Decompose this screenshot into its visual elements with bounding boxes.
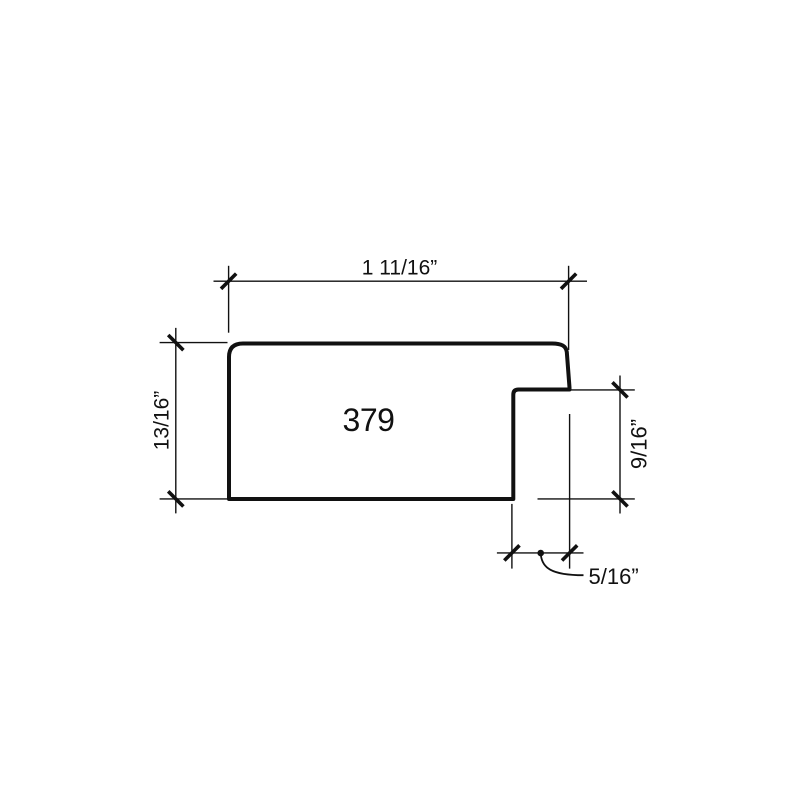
svg-text:379: 379 xyxy=(343,402,395,438)
svg-text:1 11/16”: 1 11/16” xyxy=(362,257,438,280)
svg-text:13/16”: 13/16” xyxy=(151,391,174,451)
svg-text:5/16”: 5/16” xyxy=(589,564,639,589)
svg-text:9/16”: 9/16” xyxy=(627,419,652,469)
